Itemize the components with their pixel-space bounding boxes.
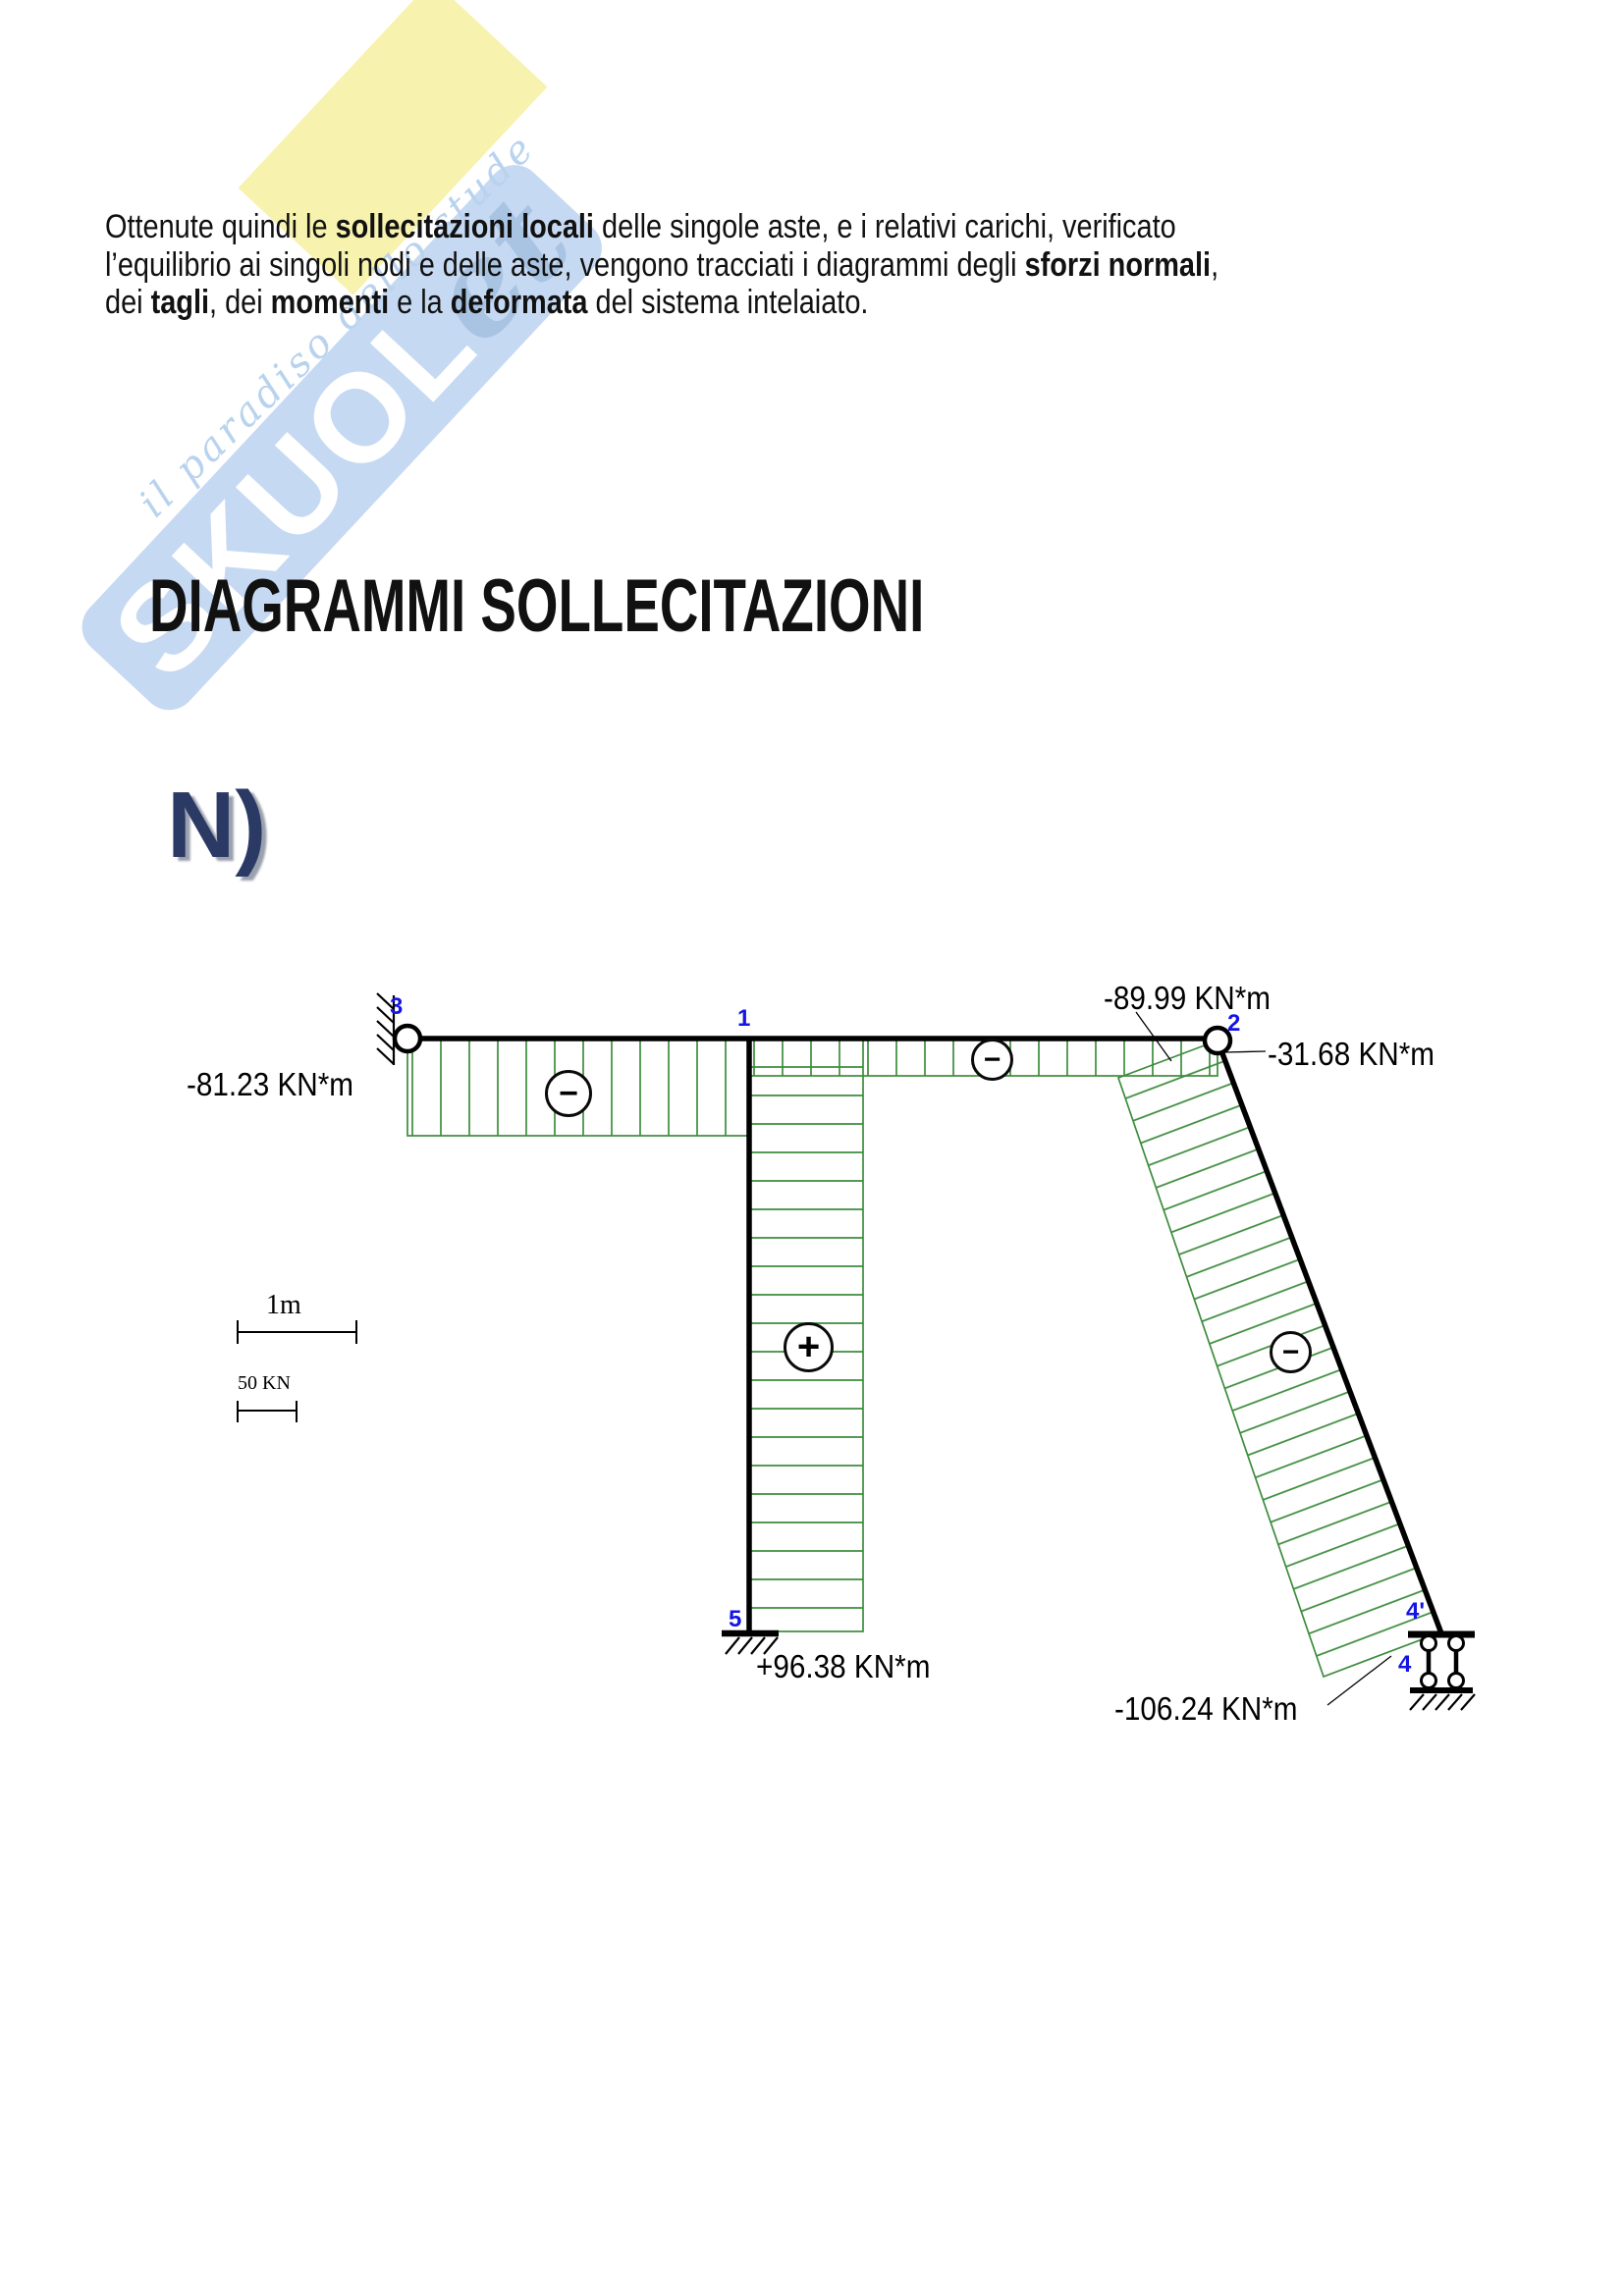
node-label-5: 5 (729, 1606, 741, 1633)
force-scale-label: 50 KN (238, 1372, 291, 1395)
diagram-canvas (0, 0, 1624, 2296)
length-scale-label: 1m (266, 1290, 301, 1321)
value-label-beam-right: -31.68 KN*m (1268, 1036, 1435, 1073)
value-label-incline-bottom: -106.24 KN*m (1114, 1690, 1298, 1728)
node-label-4: 4 (1398, 1651, 1411, 1679)
length-scale-bar (238, 1320, 356, 1344)
node-label-2: 2 (1227, 1010, 1240, 1038)
sign-indicator-column: + (784, 1322, 834, 1372)
document-page: SKUOLet il paradiso dello stude Ottenute… (0, 0, 1624, 2296)
value-label-column-base: +96.38 KN*m (756, 1648, 930, 1685)
force-scale-bar (238, 1401, 297, 1422)
value-label-beam-left: -81.23 KN*m (187, 1066, 353, 1103)
sign-indicator-beam-left: − (545, 1070, 592, 1117)
node-label-1: 1 (737, 1005, 750, 1033)
support-node4 (1408, 1634, 1475, 1710)
node-label-4-prime: 4' (1406, 1598, 1425, 1626)
node-label-3: 3 (390, 993, 403, 1021)
node3-hinge (395, 1026, 420, 1051)
sign-indicator-beam-right: − (971, 1039, 1013, 1081)
value-label-incline-top: -89.99 KN*m (1104, 980, 1271, 1017)
sign-indicator-incline: − (1270, 1331, 1312, 1373)
